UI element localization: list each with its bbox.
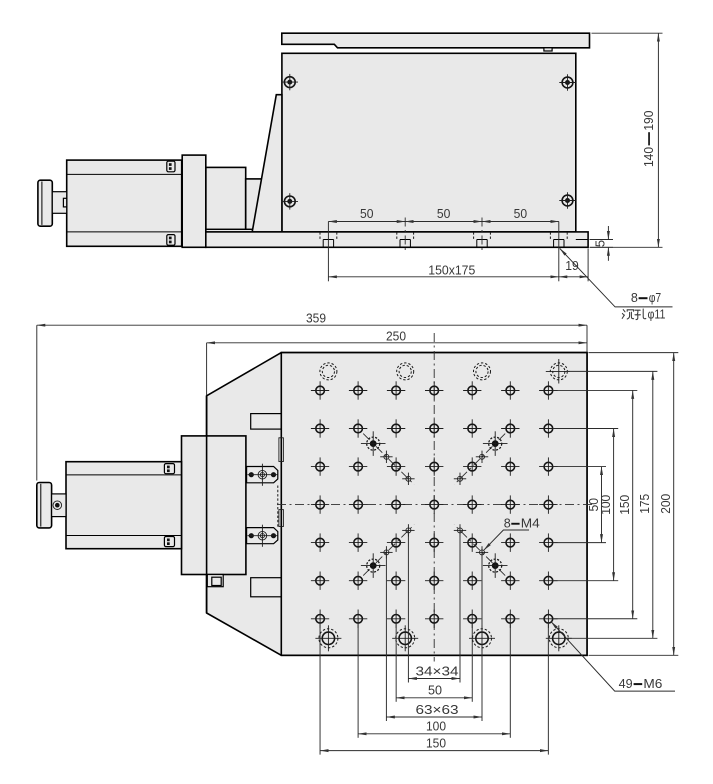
svg-text:50: 50 <box>428 683 442 698</box>
svg-text:M6: M6 <box>643 676 662 691</box>
svg-text:50: 50 <box>514 206 528 221</box>
svg-text:M4: M4 <box>521 516 540 531</box>
svg-text:34×34: 34×34 <box>416 663 459 678</box>
svg-text:50: 50 <box>360 206 374 221</box>
svg-text:8: 8 <box>504 516 511 531</box>
svg-text:19: 19 <box>565 258 579 273</box>
svg-text:49: 49 <box>619 676 633 691</box>
svg-text:359: 359 <box>306 311 326 326</box>
svg-text:100: 100 <box>426 719 446 734</box>
svg-text:250: 250 <box>386 328 406 343</box>
svg-text:200: 200 <box>658 494 673 514</box>
svg-text:150x175: 150x175 <box>428 263 475 278</box>
svg-text:φ11: φ11 <box>648 306 666 321</box>
svg-text:50: 50 <box>437 206 451 221</box>
svg-text:150: 150 <box>617 495 632 515</box>
svg-text:150: 150 <box>426 735 446 750</box>
svg-text:63×63: 63×63 <box>416 702 459 717</box>
svg-text:190: 190 <box>641 111 656 131</box>
svg-text:φ7: φ7 <box>649 290 662 305</box>
svg-text:175: 175 <box>637 494 652 514</box>
svg-text:100: 100 <box>598 495 613 515</box>
svg-text:5: 5 <box>593 240 608 247</box>
svg-text:8: 8 <box>631 290 638 305</box>
svg-text:140: 140 <box>641 147 656 167</box>
